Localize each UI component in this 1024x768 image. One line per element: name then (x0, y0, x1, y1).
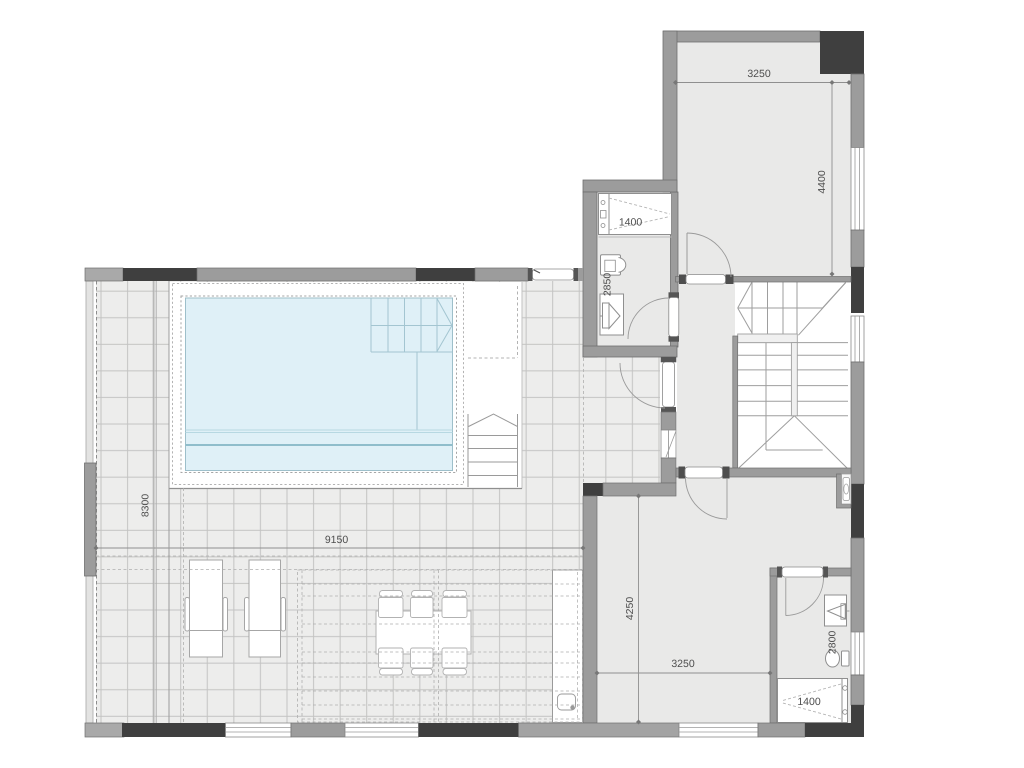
svg-text:2850: 2850 (602, 273, 614, 297)
svg-text:1400: 1400 (619, 216, 643, 228)
svg-text:1400: 1400 (797, 696, 821, 708)
svg-text:9150: 9150 (325, 534, 349, 546)
svg-text:3250: 3250 (671, 658, 695, 670)
svg-text:4250: 4250 (624, 597, 636, 621)
svg-text:2800: 2800 (827, 631, 839, 655)
svg-text:3250: 3250 (747, 68, 771, 80)
svg-text:8300: 8300 (140, 494, 152, 518)
svg-text:4400: 4400 (816, 170, 828, 194)
